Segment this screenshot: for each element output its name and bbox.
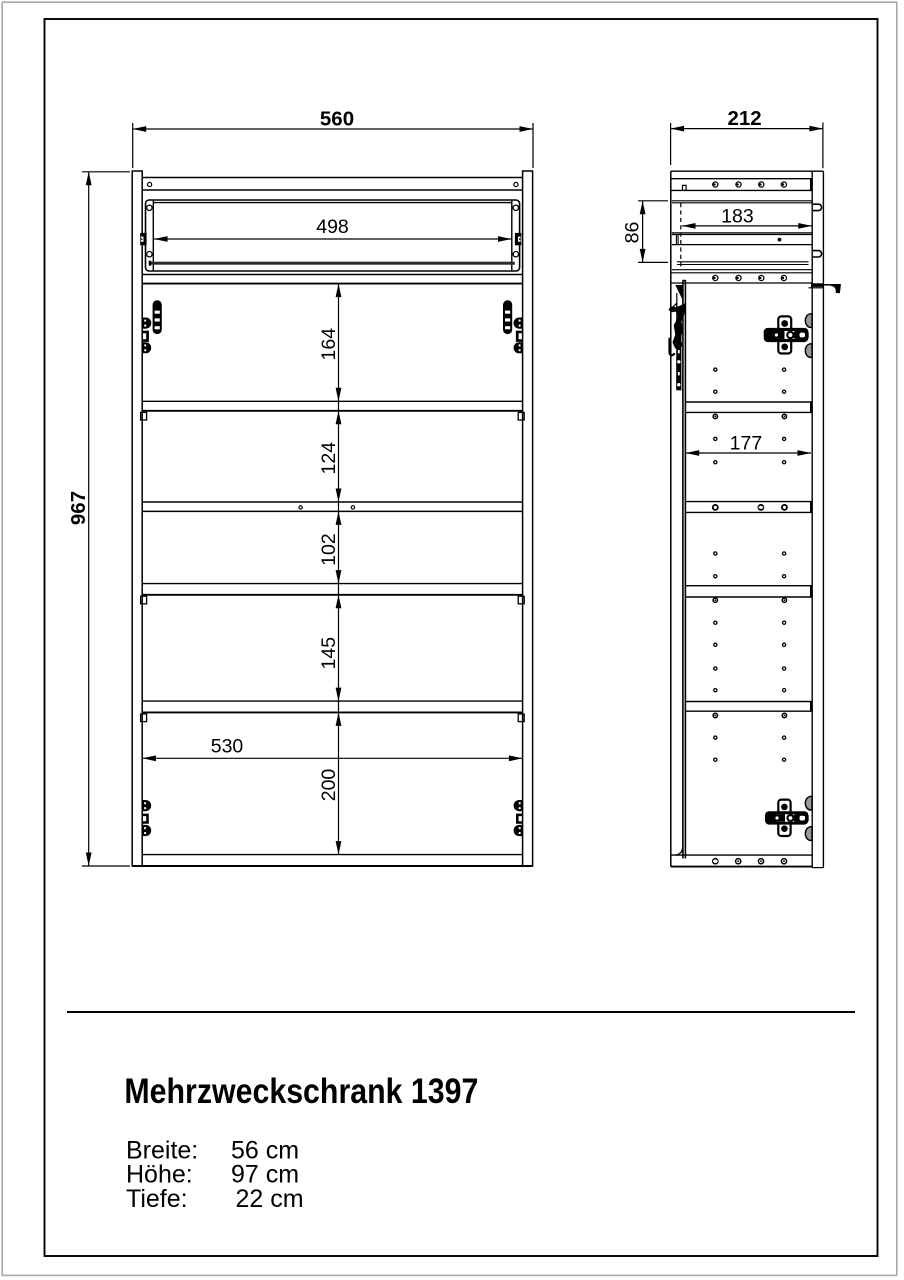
svg-text:530: 530: [211, 736, 244, 758]
svg-text:200: 200: [318, 769, 340, 802]
svg-text:177: 177: [730, 432, 763, 454]
svg-text:967: 967: [67, 491, 90, 525]
svg-text:212: 212: [727, 107, 761, 130]
svg-text:560: 560: [320, 108, 354, 131]
svg-text:22 cm: 22 cm: [236, 1185, 304, 1213]
svg-text:498: 498: [316, 216, 349, 238]
svg-text:124: 124: [318, 442, 340, 475]
svg-text:183: 183: [721, 205, 754, 227]
svg-text:Tiefe:: Tiefe:: [126, 1185, 188, 1213]
svg-text:145: 145: [318, 637, 340, 670]
svg-text:164: 164: [318, 328, 340, 361]
svg-text:86: 86: [622, 222, 644, 244]
svg-text:Mehrzweckschrank 1397: Mehrzweckschrank 1397: [124, 1071, 478, 1111]
svg-text:102: 102: [318, 533, 340, 566]
